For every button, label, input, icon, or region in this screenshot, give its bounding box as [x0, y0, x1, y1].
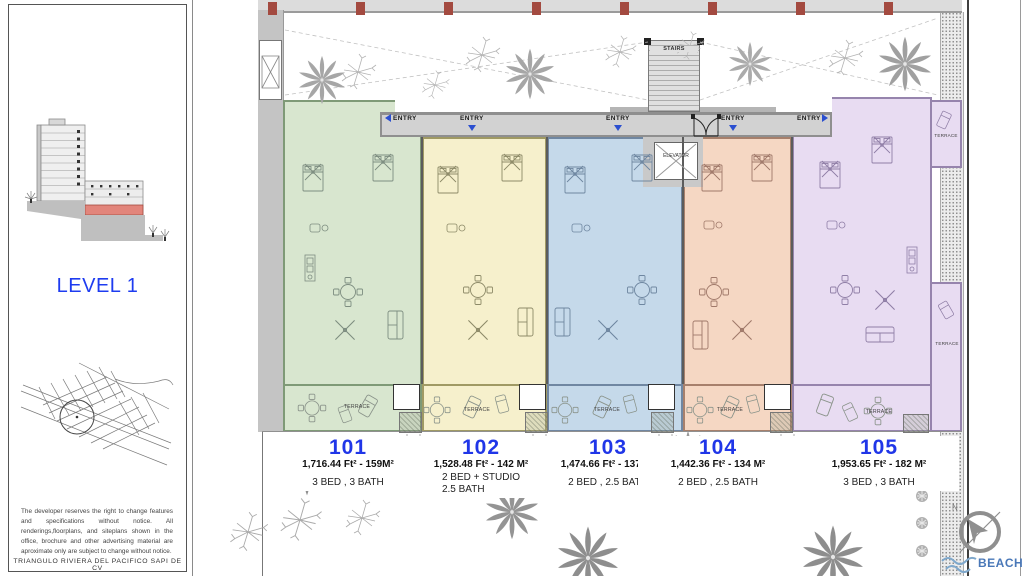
- terrace-hatch-pad: [399, 412, 422, 433]
- terrace-hatch-pad: [770, 412, 793, 433]
- elevator-label: ELEVATOR: [654, 153, 698, 159]
- terrace-stair-notch: [648, 384, 675, 410]
- unit-102-floorplan: [422, 137, 547, 386]
- palm-tree-icon: [878, 37, 931, 92]
- company-name: TRIANGULO RIVIERA DEL PACIFICO SAPI DE C…: [9, 558, 186, 572]
- floorplan-sheet: { "sidebar": { "level_title": "LEVEL 1",…: [0, 0, 1024, 576]
- unit-card-105: 105 1,953.65 Ft² - 182 M² 3 BED , 3 BATH: [799, 436, 959, 491]
- column-marker: [708, 2, 717, 15]
- palm-ball-icon: [916, 545, 928, 557]
- terrace-stair-notch: [764, 384, 791, 410]
- column-marker: [444, 2, 453, 15]
- sheet-divider-line: [192, 0, 193, 576]
- unit-bedbath: 2 BED , 2.5 BATH: [678, 477, 758, 490]
- column-marker: [532, 2, 541, 15]
- column-marker: [884, 2, 893, 15]
- entry-arrow-down-icon: [468, 125, 476, 131]
- terrace-hatch-pad: [651, 412, 674, 433]
- terrace-label-103: TERRACE: [585, 407, 629, 413]
- entry-label-5: ENTRY: [797, 115, 821, 122]
- site-location-map: [19, 357, 175, 479]
- unit-bedbath: 3 BED , 3 BATH: [312, 477, 384, 490]
- unit-bedbath-2: 2.5 BATH: [442, 484, 520, 497]
- palm-tree-icon: [802, 526, 864, 576]
- unit-card-104: 104 1,442.36 Ft² - 134 M² 2 BED , 2.5 BA…: [638, 436, 798, 491]
- title-block-sidebar: LEVEL 1 The developer reserves the right…: [8, 4, 187, 572]
- terrace-label-102: TERRACE: [455, 407, 499, 413]
- beach-label: BEACH: [978, 556, 1023, 570]
- terrace-hatch-pad: [903, 414, 929, 433]
- terrace-stair-notch: [519, 384, 546, 410]
- terrace-label-105-top: TERRACE: [931, 133, 961, 138]
- unit-area: 1,953.65 Ft² - 182 M²: [799, 459, 959, 472]
- thin-tree-icon: [422, 71, 449, 99]
- palm-ball-icon: [916, 490, 928, 502]
- disclaimer-text: The developer reserves the right to chan…: [21, 507, 173, 557]
- entry-arrow-down-icon: [729, 125, 737, 131]
- column-marker: [268, 2, 277, 15]
- entry-label-2: ENTRY: [460, 115, 484, 122]
- palm-ball-icon: [916, 517, 928, 529]
- highlighted-level-1: [85, 205, 143, 215]
- compass-icon: [960, 512, 1000, 552]
- unit-area: 1,442.36 Ft² - 134 M²: [638, 459, 798, 472]
- thin-tree-icon: [466, 37, 500, 72]
- terrace-label-104: TERRACE: [708, 407, 752, 413]
- entry-arrow-left-icon: [385, 114, 391, 122]
- plot-right-border: [967, 0, 969, 576]
- unit-number: 105: [799, 437, 959, 459]
- elevator-shaft: [654, 142, 698, 180]
- unit-bedbath: 3 BED , 3 BATH: [843, 477, 915, 490]
- ground-line: [262, 431, 962, 432]
- thin-tree-icon: [342, 54, 376, 89]
- terrace-stair-notch: [393, 384, 420, 410]
- building-section-elevation: [21, 115, 173, 265]
- entry-label-3: ENTRY: [606, 115, 630, 122]
- thin-tree-icon: [829, 40, 863, 75]
- thin-tree-icon: [281, 498, 322, 540]
- terrace-hatch-pad: [525, 412, 548, 433]
- compass-north-label: N: [952, 503, 958, 512]
- entry-arrow-right-icon: [822, 114, 828, 122]
- unit-bedbath: 2 BED , 2.5 BATH: [568, 477, 648, 490]
- palm-tree-icon: [728, 42, 771, 86]
- terrace-label-105-side: TERRACE: [932, 341, 962, 346]
- unit-bedbath: 2 BED + STUDIO: [442, 472, 520, 485]
- unit-105-floorplan: [792, 97, 932, 386]
- sight-lines: [285, 18, 938, 100]
- stair-post: [644, 38, 651, 45]
- unit-101-floorplan: [283, 100, 422, 386]
- column-marker: [796, 2, 805, 15]
- thin-tree-icon: [606, 36, 637, 68]
- stair-post: [697, 38, 704, 45]
- entry-arrow-down-icon: [614, 125, 622, 131]
- column-marker: [356, 2, 365, 15]
- terrace-label-101: TERRACE: [335, 404, 379, 410]
- palm-tree-icon: [557, 527, 619, 576]
- terrace-label-105: TERRACE: [857, 409, 901, 415]
- unit-105-side-terrace: [930, 282, 962, 432]
- left-shaft: [259, 40, 282, 100]
- plot-left-border: [262, 432, 263, 576]
- level-title: LEVEL 1: [9, 275, 186, 298]
- thin-tree-icon: [346, 500, 380, 535]
- unit-number: 104: [638, 437, 798, 459]
- palm-tree-icon: [298, 56, 345, 104]
- palm-tree-icon: [505, 49, 554, 99]
- entry-label-1: ENTRY: [393, 115, 417, 122]
- sheet-right-border: [1020, 0, 1021, 576]
- column-marker: [620, 2, 629, 15]
- stairs-label: STAIRS: [650, 46, 698, 52]
- entry-label-4: ENTRY: [721, 115, 745, 122]
